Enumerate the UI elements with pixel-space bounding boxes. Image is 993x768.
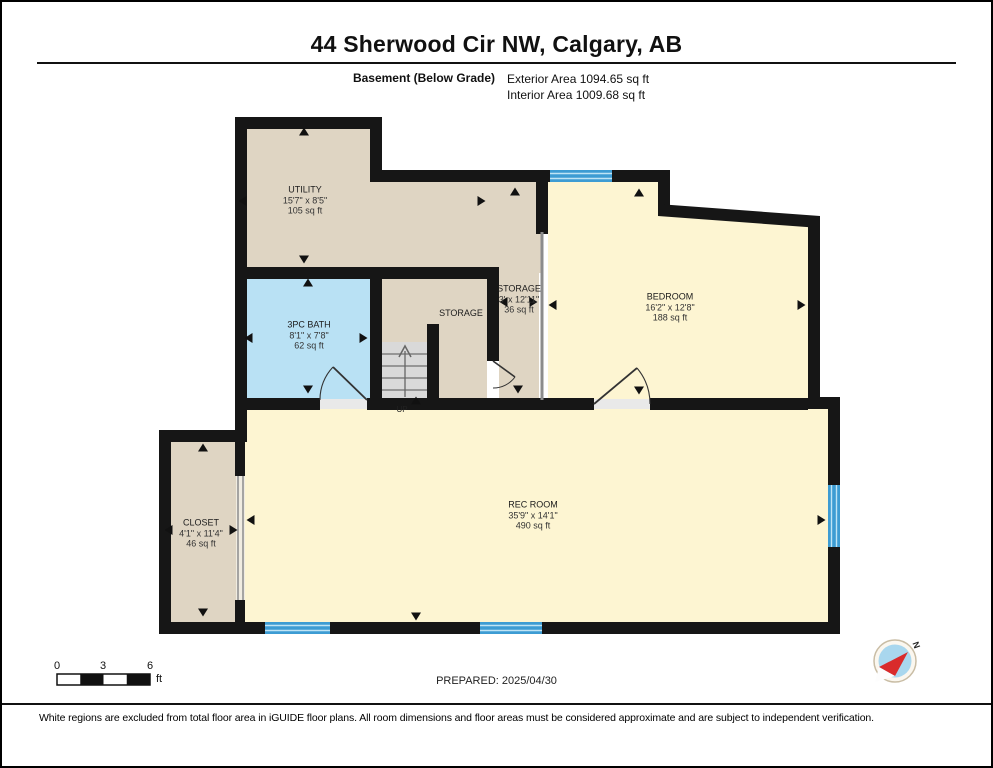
scale-tick-6: 6 [147,660,153,672]
room-area: 62 sq ft [287,340,330,351]
stairs-up-label: UP [396,405,407,414]
room-dimensions: 8'1" x 7'8" [287,330,330,341]
room-dimensions: 16'2" x 12'8" [645,302,694,313]
room-name: 3PC BATH [287,319,330,330]
room-name: STORAGE [439,308,483,319]
prepared-date: PREPARED: 2025/04/30 [2,675,991,687]
room-name: UTILITY [283,184,327,195]
room-dimensions: 3' x 12'11" [497,294,541,305]
room-label-rec-room: REC ROOM 35'9" x 14'1" 490 sq ft [508,499,558,531]
room-area: 188 sq ft [645,312,694,323]
room-name: CLOSET [179,517,223,528]
room-label-bath: 3PC BATH 8'1" x 7'8" 62 sq ft [287,319,330,351]
floorplan-canvas [2,2,993,768]
window-rec-right [828,485,840,547]
window-rec-bottom-mid [480,622,542,634]
room-dimensions: 4'1" x 11'4" [179,528,223,539]
floorplan-page: 44 Sherwood Cir NW, Calgary, AB Basement… [0,0,993,768]
room-name: BEDROOM [645,291,694,302]
room-dimensions: 15'7" x 8'5" [283,195,327,206]
room-label-closet: CLOSET 4'1" x 11'4" 46 sq ft [179,517,223,549]
room-dimensions: 35'9" x 14'1" [508,510,558,521]
room-area: 490 sq ft [508,520,558,531]
room-label-storage-inner: STORAGE [439,308,483,319]
room-label-storage: STORAGE 3' x 12'11" 36 sq ft [497,283,541,315]
scale-tick-0: 0 [54,660,60,672]
staircase [382,342,427,400]
disclaimer-text: White regions are excluded from total fl… [39,712,971,724]
room-fills [165,123,834,628]
footer-divider [2,703,991,705]
room-label-bedroom: BEDROOM 16'2" x 12'8" 188 sq ft [645,291,694,323]
room-name: STORAGE [497,283,541,294]
room-area: 36 sq ft [497,304,541,315]
window-bedroom [550,170,612,182]
room-name: REC ROOM [508,499,558,510]
room-label-utility: UTILITY 15'7" x 8'5" 105 sq ft [283,184,327,216]
window-rec-bottom-left [265,622,330,634]
room-area: 105 sq ft [283,205,327,216]
storage-bedroom-partition [541,232,544,400]
room-area: 46 sq ft [179,538,223,549]
scale-tick-3: 3 [100,660,106,672]
